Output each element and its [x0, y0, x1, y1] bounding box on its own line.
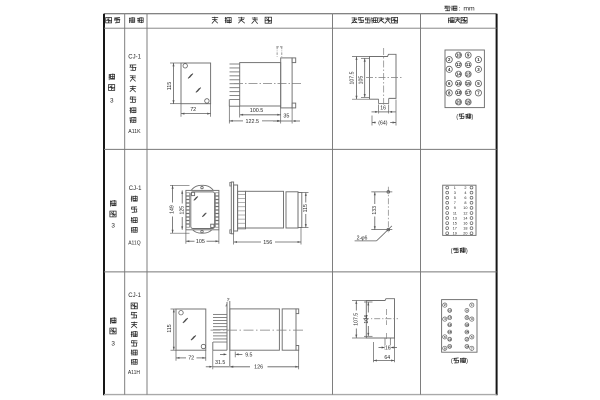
svg-text:3: 3	[111, 341, 115, 348]
svg-text:11: 11	[453, 211, 457, 215]
svg-text:19: 19	[453, 232, 457, 236]
svg-text:156: 156	[263, 240, 272, 246]
svg-text:105: 105	[358, 76, 364, 85]
svg-text:15: 15	[466, 81, 471, 86]
svg-text:): )	[466, 248, 468, 254]
svg-text:122.5: 122.5	[246, 119, 260, 125]
svg-text:A11H: A11H	[128, 370, 141, 376]
svg-text:13: 13	[466, 72, 471, 77]
svg-text:72: 72	[190, 107, 196, 113]
svg-text:14: 14	[456, 72, 461, 77]
svg-text:A11K: A11K	[128, 129, 141, 135]
svg-text:115: 115	[303, 204, 309, 212]
svg-text:20: 20	[456, 100, 461, 105]
svg-text:16: 16	[448, 330, 452, 334]
svg-text:20: 20	[463, 232, 467, 236]
svg-text:3: 3	[454, 191, 456, 195]
svg-text:17: 17	[453, 226, 457, 230]
svg-text:6: 6	[464, 196, 466, 200]
svg-text:11: 11	[465, 316, 469, 320]
svg-text:126: 126	[254, 365, 263, 371]
svg-text:107.5: 107.5	[349, 71, 355, 84]
svg-text:mm: mm	[463, 6, 475, 13]
svg-text:19: 19	[466, 100, 471, 105]
svg-text:5: 5	[454, 196, 456, 200]
svg-text:9.5: 9.5	[245, 353, 252, 359]
svg-text:14: 14	[463, 216, 467, 220]
svg-text:104: 104	[364, 315, 370, 324]
svg-text:14: 14	[448, 323, 452, 327]
svg-text:CJ-1: CJ-1	[129, 186, 142, 192]
svg-text:CJ-1: CJ-1	[128, 54, 141, 60]
svg-text:1: 1	[454, 186, 456, 190]
svg-text:18: 18	[456, 90, 461, 95]
svg-text:10: 10	[456, 53, 461, 58]
svg-text:19: 19	[465, 345, 469, 349]
svg-text:17: 17	[465, 337, 469, 341]
svg-text:16: 16	[380, 105, 386, 111]
svg-text:13: 13	[453, 216, 457, 220]
svg-text:17: 17	[466, 90, 471, 95]
svg-text:7: 7	[454, 201, 456, 205]
svg-text:15: 15	[465, 330, 469, 334]
svg-text:115: 115	[167, 82, 173, 91]
svg-text:105: 105	[196, 239, 205, 245]
svg-text:100.5: 100.5	[250, 108, 264, 114]
svg-text:107.5: 107.5	[353, 313, 359, 326]
svg-text:(: (	[456, 114, 458, 120]
svg-text:(64): (64)	[378, 121, 387, 127]
svg-text:125: 125	[179, 206, 185, 215]
svg-text:16: 16	[456, 81, 461, 86]
svg-text:): )	[471, 114, 473, 120]
svg-text:18: 18	[448, 337, 452, 341]
svg-text:2-φ6: 2-φ6	[357, 236, 368, 242]
svg-text:): )	[466, 359, 468, 365]
svg-text:133: 133	[372, 206, 378, 215]
svg-text:12: 12	[463, 211, 467, 215]
svg-text:31.5: 31.5	[215, 360, 225, 366]
svg-text:4: 4	[464, 191, 466, 195]
svg-text:15: 15	[453, 221, 457, 225]
svg-text:(: (	[451, 248, 453, 254]
svg-text:35: 35	[283, 113, 289, 119]
svg-text:12: 12	[448, 316, 452, 320]
svg-text:72: 72	[188, 356, 194, 362]
svg-text:3: 3	[110, 97, 114, 104]
svg-text:11: 11	[466, 62, 471, 67]
svg-text:A11Q: A11Q	[128, 240, 141, 246]
svg-text:13: 13	[465, 323, 469, 327]
svg-text:(: (	[451, 359, 453, 365]
svg-text:CJ-1: CJ-1	[128, 293, 141, 299]
svg-text:9: 9	[454, 206, 456, 210]
svg-text:64: 64	[384, 355, 390, 361]
svg-text:115: 115	[167, 324, 173, 332]
svg-text::: :	[459, 6, 461, 13]
svg-text:8: 8	[464, 201, 466, 205]
svg-text:3: 3	[111, 222, 115, 229]
svg-text:149: 149	[170, 205, 176, 214]
svg-text:16: 16	[463, 221, 467, 225]
svg-text:10: 10	[463, 206, 467, 210]
svg-text:18: 18	[463, 226, 467, 230]
svg-text:20: 20	[448, 345, 452, 349]
svg-text:12: 12	[456, 62, 461, 67]
svg-text:16: 16	[385, 345, 391, 351]
svg-text:2: 2	[464, 186, 466, 190]
svg-text:10: 10	[448, 309, 452, 313]
